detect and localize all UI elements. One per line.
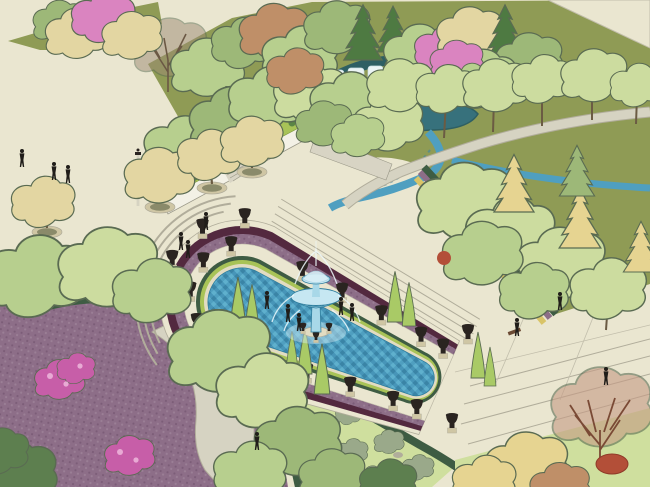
landscape-render [0, 0, 650, 487]
red-shrub [596, 454, 628, 474]
garden-render-canvas [0, 0, 650, 487]
red-shrub [437, 251, 451, 265]
